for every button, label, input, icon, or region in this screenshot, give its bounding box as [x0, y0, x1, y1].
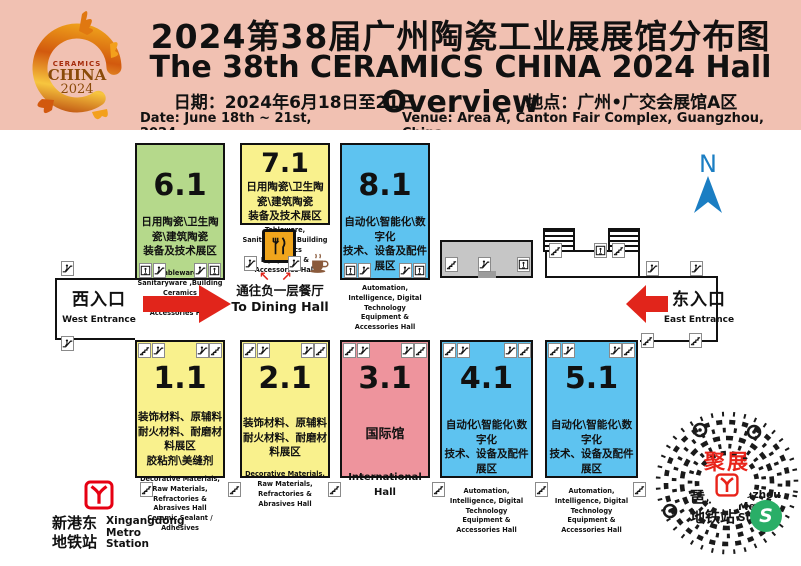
- stairs-icon: [443, 343, 456, 358]
- stairs-icon: [518, 343, 531, 358]
- dining-label-en: To Dining Hall: [222, 299, 338, 315]
- hall-number: 4.1: [460, 364, 513, 394]
- qr-brand-text: 聚展: [697, 452, 757, 473]
- hall-7.1: 7.1 日用陶瓷\卫生陶瓷\建筑陶瓷 装备及技术展区 Tableware, Sa…: [240, 143, 330, 225]
- hall-name-en: Automation, Intelligence, Digital Techno…: [342, 284, 428, 333]
- stairs-icon: [689, 333, 702, 348]
- hall-5.1: 5.1 自动化\智能化\数字化 技术、设备及配件展区 Automation, I…: [545, 340, 638, 478]
- elevator-icon: [344, 263, 357, 278]
- qr-center-brand: 聚展: [697, 452, 757, 501]
- hall-map: 6.1 日用陶瓷\卫生陶瓷\建筑陶瓷 装备及技术展区 Tableware, Sa…: [0, 130, 801, 566]
- hall-name-cn: 日用陶瓷\卫生陶瓷\建筑陶瓷 装备及技术展区: [137, 215, 223, 259]
- escalator-icon: [457, 343, 470, 358]
- hall-number: 6.1: [153, 171, 206, 201]
- hall-1.1: 1.1 装饰材料、原辅料 耐火材料、耐磨材料展区 胶粘剂\美缝剂 Decorat…: [135, 340, 225, 478]
- escalator-icon: [504, 343, 517, 358]
- info-row-chinese: 日期：2024年6月18日至21日 地点：广州•广交会展馆A区: [140, 88, 771, 113]
- hall-6.1: 6.1 日用陶瓷\卫生陶瓷\建筑陶瓷 装备及技术展区 Tableware, Sa…: [135, 143, 225, 280]
- wechat-miniprogram-icon: S: [750, 500, 782, 532]
- east-entrance-cn: 东入口: [668, 288, 730, 314]
- stairs-icon: [343, 343, 356, 358]
- hall-number: 5.1: [565, 364, 618, 394]
- escalator-icon: [196, 343, 209, 358]
- stairs-icon: [228, 482, 241, 497]
- hall-name-cn: 日用陶瓷\卫生陶瓷\建筑陶瓷 装备及技术展区: [242, 180, 328, 224]
- metro-logo-icon: [84, 480, 114, 510]
- hall-8.1: 8.1 自动化\智能化\数字化 技术、设备及配件展区 Automation, I…: [340, 143, 430, 280]
- coffee-cup-icon: [308, 252, 330, 274]
- escalator-icon: [257, 343, 270, 358]
- stairs-icon: [209, 343, 222, 358]
- hall-name-cn: 国际馆: [365, 426, 404, 444]
- xingangdong-en: Xingangdong Metro Station: [106, 516, 184, 551]
- hall-name-en: Automation, Intelligence, Digital Techno…: [442, 487, 531, 536]
- escalator-icon: [358, 263, 371, 278]
- hall-number: 8.1: [358, 171, 411, 201]
- elevator-icon: [594, 243, 607, 258]
- east-entrance-arrow-icon: [626, 285, 668, 323]
- hall-3.1-international: 3.1 国际馆 International Hall: [340, 340, 430, 478]
- dining-label: 通往负一层餐厅 To Dining Hall: [222, 283, 338, 314]
- elevator-icon: [208, 263, 221, 278]
- qr-metro-logo-icon: [715, 473, 739, 497]
- xingangdong-cn: 新港东 地铁站: [52, 514, 104, 552]
- escalator-icon: [609, 343, 622, 358]
- escalator-icon: [357, 343, 370, 358]
- escalator-icon: [690, 261, 703, 276]
- north-compass: N: [688, 152, 728, 218]
- dining-arrow-left-icon: ↖: [259, 270, 270, 285]
- stairs-icon: [328, 482, 341, 497]
- west-entrance-en: West Entrance: [56, 314, 142, 328]
- stairs-icon: [633, 482, 646, 497]
- stairs-icon: [548, 343, 561, 358]
- hall-name-en: Decorative Materials, Raw Materials, Ref…: [242, 470, 328, 510]
- date-chinese: 日期：2024年6月18日至21日: [174, 88, 416, 113]
- elevator-icon: [517, 257, 530, 272]
- escalator-icon: [61, 336, 74, 351]
- west-entrance-arrow-icon: [143, 285, 231, 323]
- stairs-icon: [138, 343, 151, 358]
- hall-2.1: 2.1 装饰材料、原辅料 耐火材料、耐磨材料展区 Decorative Mate…: [240, 340, 330, 478]
- escalator-icon: [61, 261, 74, 276]
- stairs-icon: [414, 343, 427, 358]
- hall-number: 7.1: [261, 150, 309, 177]
- north-letter: N: [688, 152, 728, 176]
- escalator-icon: [399, 263, 412, 278]
- escalator-icon: [153, 263, 166, 278]
- logo-2024: 2024: [48, 83, 106, 96]
- hall-4.1: 4.1 自动化\智能化\数字化 技术、设备及配件展区 Automation, I…: [440, 340, 533, 478]
- poster: CERAMICS CHINA 2024 2024第38届广州陶瓷工业展展馆分布图…: [0, 0, 801, 566]
- escalator-icon: [401, 343, 414, 358]
- logo-text: CERAMICS CHINA 2024: [48, 61, 106, 96]
- venue-chinese: 地点：广州•广交会展馆A区: [526, 88, 737, 113]
- west-entrance-label: 西入口 West Entrance: [56, 288, 142, 327]
- hall-number: 2.1: [258, 364, 311, 394]
- ceramics-china-logo: CERAMICS CHINA 2024: [22, 4, 132, 128]
- escalator-icon: [152, 343, 165, 358]
- escalator-icon: [562, 343, 575, 358]
- stairs-icon: [622, 343, 635, 358]
- hall-name-cn: 装饰材料、原辅料 耐火材料、耐磨材料展区: [242, 416, 328, 460]
- north-arrow-icon: [692, 176, 724, 214]
- stairs-icon: [445, 257, 458, 272]
- stairs-icon: [612, 243, 625, 258]
- escalator-icon: [194, 263, 207, 278]
- hall-name-cn: 自动化\智能化\数字化 技术、设备及配件展区: [442, 418, 531, 477]
- stairs-icon: [432, 482, 445, 497]
- dining-label-cn: 通往负一层餐厅: [222, 283, 338, 299]
- hall-name-cn: 装饰材料、原辅料 耐火材料、耐磨材料展区 胶粘剂\美缝剂: [137, 410, 223, 469]
- west-entrance-cn: 西入口: [56, 288, 142, 314]
- escalator-icon: [244, 256, 257, 271]
- elevator-icon: [413, 263, 426, 278]
- stairs-icon: [314, 343, 327, 358]
- escalator-icon: [478, 257, 491, 272]
- hall-number: 1.1: [153, 364, 206, 394]
- hall-name-en: Automation, Intelligence, Digital Techno…: [547, 487, 636, 536]
- escalator-icon: [301, 343, 314, 358]
- hall-name-en: International Hall: [342, 470, 428, 500]
- dining-arrow-right-icon: ↗: [281, 270, 292, 285]
- stairs-icon: [243, 343, 256, 358]
- stairs-icon: [140, 482, 153, 497]
- header: CERAMICS CHINA 2024 2024第38届广州陶瓷工业展展馆分布图…: [0, 0, 801, 130]
- hall-name-cn: 自动化\智能化\数字化 技术、设备及配件展区: [547, 418, 636, 477]
- hall-number: 3.1: [358, 364, 411, 394]
- logo-china: CHINA: [48, 68, 106, 83]
- escalator-icon: [288, 256, 301, 271]
- service-building-door: [478, 271, 496, 278]
- escalator-icon: [646, 261, 659, 276]
- stairs-icon: [641, 333, 654, 348]
- elevator-icon: [139, 263, 152, 278]
- stairs-icon: [535, 482, 548, 497]
- stairs-icon: [549, 243, 562, 258]
- east-entrance-label: 东入口 East Entrance: [668, 288, 730, 327]
